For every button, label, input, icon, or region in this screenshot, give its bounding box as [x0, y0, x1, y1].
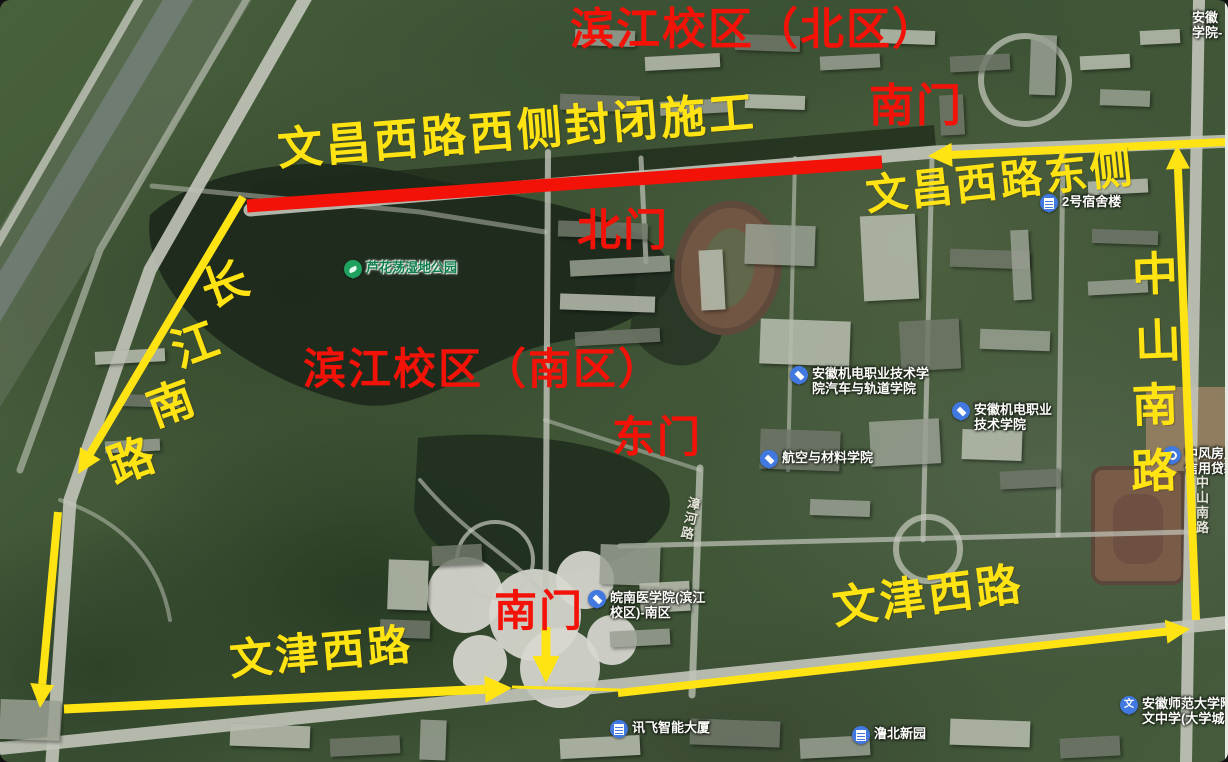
- arrow-wenjin-eastbound-right: [618, 620, 1190, 693]
- east-gate: 东门: [612, 417, 702, 460]
- satellite-map[interactable]: 芦花荡湿地公园2号宿舍楼安徽机电职业技术学院汽车与轨道学院安徽机电职业技术学院航…: [0, 0, 1228, 762]
- zhongshan-south-road-char: 南: [1131, 382, 1182, 430]
- south-gate-north-campus: 南门: [869, 84, 963, 129]
- south-gate-south-campus: 南门: [494, 591, 584, 634]
- campus-south-title: 滨江校区（南区）: [303, 349, 663, 392]
- zhongshan-south-road-char: 路: [1130, 448, 1181, 496]
- zhongshan-south-road-char: 中: [1131, 251, 1182, 299]
- arrow-wenjin-eastbound-left: [64, 676, 512, 709]
- wenjin-connector: [512, 687, 620, 690]
- zhongshan-south-road-char: 山: [1134, 318, 1185, 366]
- arrow-changjiang-lower: [30, 512, 58, 708]
- campus-north-title: 滨江校区（北区）: [570, 8, 938, 52]
- north-gate: 北门: [577, 209, 669, 253]
